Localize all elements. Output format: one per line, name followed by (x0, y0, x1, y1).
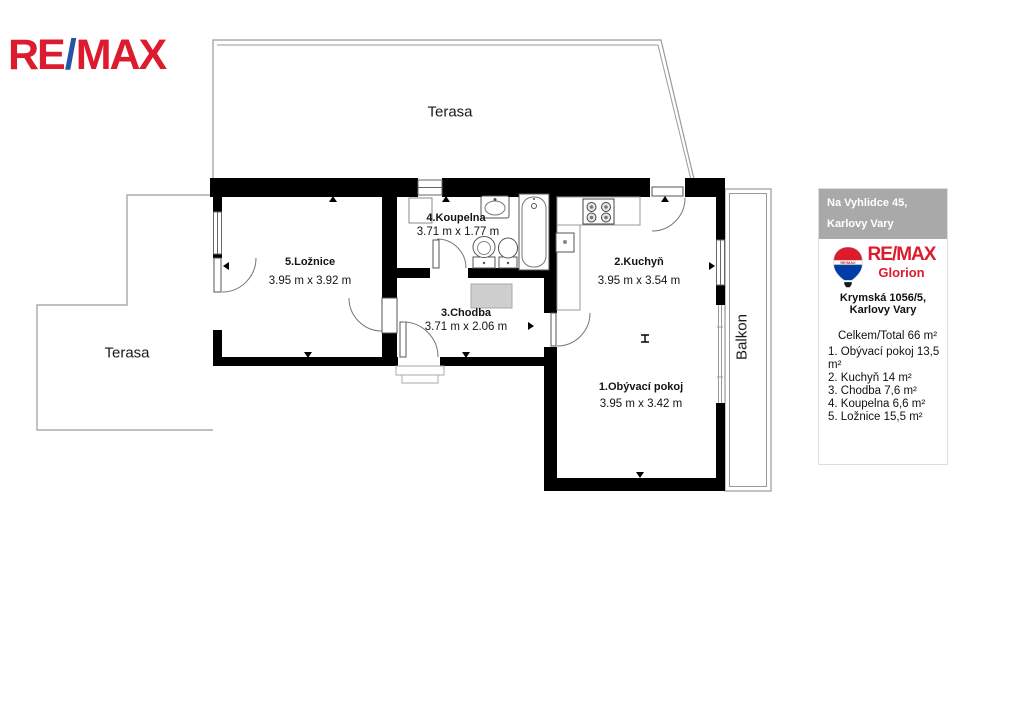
label-terasa-top: Terasa (427, 104, 472, 121)
office-name: Glorion (868, 265, 936, 280)
area-item-1: 1. Obývací pokoj 13,5 m² (828, 346, 947, 372)
svg-text:RE/MAX: RE/MAX (840, 260, 856, 265)
bathtub-icon (519, 194, 549, 270)
door-chodba-bathroom (430, 239, 468, 278)
area-item-3: 3. Chodba 7,6 m² (828, 385, 947, 398)
terrace-left-outline (37, 195, 213, 430)
stove-icon (583, 199, 614, 224)
area-item-2: 2. Kuchyň 14 m² (828, 372, 947, 385)
closet (471, 284, 512, 308)
door-chodba-living (544, 313, 590, 347)
label-obyvaci-dims: 3.95 m x 3.42 m (600, 398, 682, 410)
office-address: Krymská 1056/5, Karlovy Vary (819, 292, 947, 316)
entrance-steps (396, 366, 444, 383)
window-icon (418, 180, 442, 195)
office-brand-name: RE/MAX (868, 245, 936, 265)
door-terrace-bedroom (213, 258, 256, 330)
label-loznice-name: 5.Ložnice (285, 256, 335, 268)
kitchen-sink-icon (556, 233, 574, 252)
label-balkon: Balkon (734, 314, 751, 360)
label-terasa-left: Terasa (104, 345, 149, 362)
listing-address-line2: Karlovy Vary (827, 218, 947, 230)
door-chodba-bedroom (349, 298, 397, 333)
area-item-4: 4. Koupelna 6,6 m² (828, 398, 947, 411)
listing-address-box: Na Vyhlidce 45, Karlovy Vary (819, 189, 947, 239)
bidet-icon (499, 238, 518, 268)
listing-address-line1: Na Vyhlidce 45, (827, 197, 947, 209)
label-kuchyn-name: 2.Kuchyň (614, 256, 664, 268)
label-chodba-name: 3.Chodba (441, 307, 491, 319)
kitchen-fixtures (556, 197, 640, 310)
dimension-ticks (223, 196, 715, 478)
window-icon (214, 212, 222, 254)
info-panel: Na Vyhlidce 45, Karlovy Vary RE/MAX RE/M… (818, 188, 948, 465)
remax-balloon-icon: RE/MAX (831, 245, 865, 289)
label-koupelna-dims: 3.71 m x 1.77 m (417, 226, 499, 238)
label-koupelna-name: 4.Koupelna (426, 212, 485, 224)
area-item-5: 5. Ložnice 15,5 m² (828, 411, 947, 424)
label-obyvaci-name: 1.Obývací pokoj (599, 381, 683, 393)
label-loznice-dims: 3.95 m x 3.92 m (269, 275, 351, 287)
label-chodba-dims: 3.71 m x 2.06 m (425, 321, 507, 333)
window-icon (717, 240, 725, 285)
office-brand: RE/MAX RE/MAX Glorion (819, 239, 947, 289)
label-kuchyn-dims: 3.95 m x 3.54 m (598, 275, 680, 287)
opening-marker (641, 335, 649, 342)
glass-wall-icon (717, 305, 723, 403)
area-list: Celkem/Total 66 m² 1. Obývací pokoj 13,5… (819, 330, 947, 424)
door-terrace-kitchen (650, 178, 685, 231)
floorplan-page: RE/MAX (0, 0, 1024, 724)
area-total: Celkem/Total 66 m² (828, 330, 947, 343)
toilet-icon (473, 237, 495, 269)
